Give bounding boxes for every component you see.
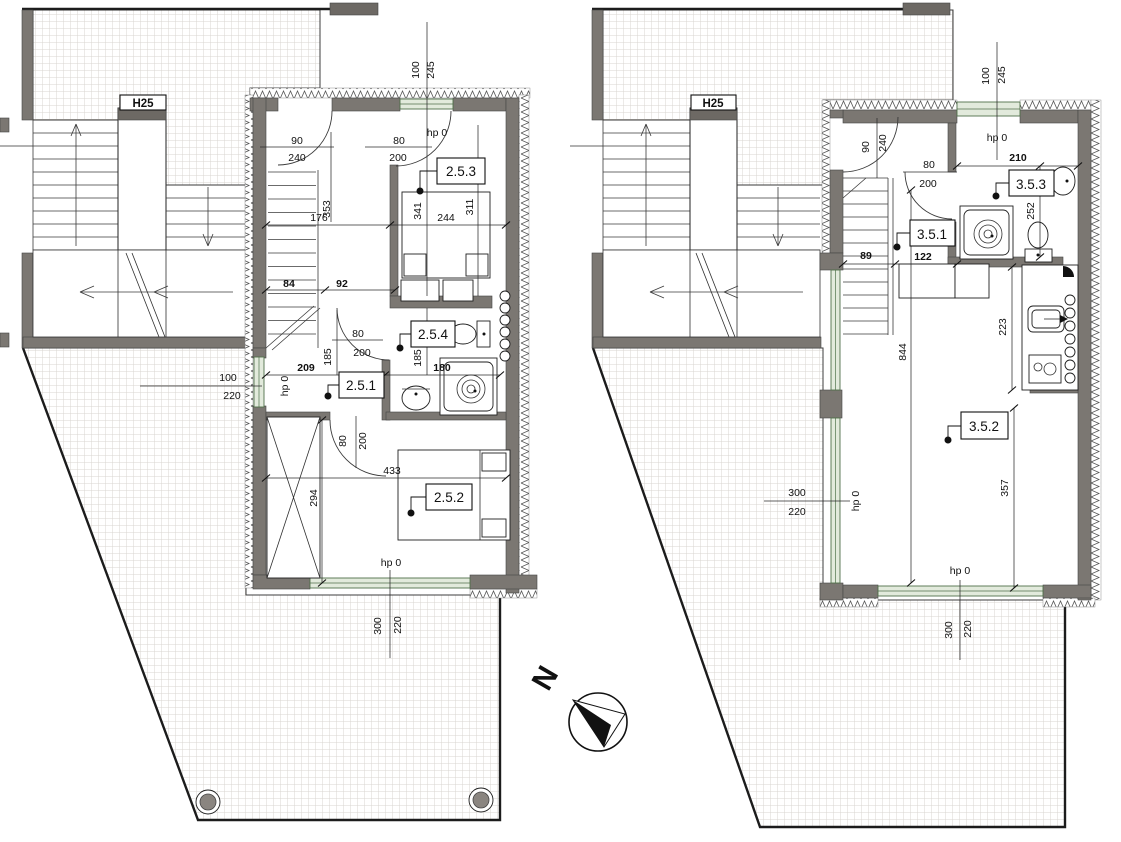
right-elevator-label: H25 <box>702 98 724 110</box>
stair-flight-up <box>603 120 690 250</box>
left-room-254-label: 2.5.4 <box>418 327 449 342</box>
stair-flight-down <box>166 185 250 250</box>
left-bottom-window-height: 220 <box>392 616 404 634</box>
stair-flight-down <box>737 185 820 250</box>
toilet-icon <box>1025 222 1052 262</box>
right-room-351-label: 3.5.1 <box>917 227 947 242</box>
right-bottom-hp: hp 0 <box>950 565 971 577</box>
floor-plan-svg: H25 <box>0 0 1121 842</box>
right-entry-door-height: 240 <box>877 134 889 152</box>
left-dim-84: 84 <box>283 278 295 290</box>
kitchen <box>1022 265 1078 390</box>
right-top-window-width: 100 <box>980 67 992 85</box>
floor-plan-sheet: H25 <box>0 0 1121 842</box>
right-top-hp: hp 0 <box>987 132 1008 144</box>
right-dim-122: 122 <box>914 251 932 263</box>
right-top-wall-cap <box>903 3 950 15</box>
left-dim-244: 244 <box>437 212 455 224</box>
left-door-253-width: 80 <box>393 135 405 147</box>
hall-cabinets <box>899 264 989 298</box>
left-dim-311: 311 <box>464 198 476 215</box>
left-top-wall-cap <box>330 3 378 15</box>
toilet-icon <box>450 321 490 347</box>
right-dim-844: 844 <box>897 343 909 361</box>
left-top-window-width: 100 <box>410 61 422 79</box>
left-dim-433: 433 <box>383 465 401 477</box>
left-plan: H25 <box>0 3 537 820</box>
left-internal-stairs <box>266 170 320 350</box>
right-dim-223: 223 <box>997 318 1009 336</box>
left-elevator-label: H25 <box>132 98 154 110</box>
left-top-hp: hp 0 <box>427 127 448 139</box>
elevator-shaft <box>690 108 737 250</box>
right-left-hp: hp 0 <box>850 491 862 512</box>
left-door-253-height: 200 <box>389 152 407 164</box>
right-left-window-height: 220 <box>788 506 806 518</box>
right-left-window-width: 300 <box>788 487 806 499</box>
right-dim-89: 89 <box>860 250 872 262</box>
left-room-251-label: 2.5.1 <box>346 378 376 393</box>
sink-icon <box>402 386 430 410</box>
left-door-254-height: 200 <box>353 347 371 359</box>
right-dim-252: 252 <box>1025 202 1037 220</box>
left-dim-180: 180 <box>433 362 451 374</box>
right-door-353-height: 200 <box>919 178 937 190</box>
left-room-253-label: 2.5.3 <box>446 164 476 179</box>
north-arrow: N <box>526 661 627 751</box>
left-entry-door-height: 240 <box>288 152 306 164</box>
right-plan: H25 <box>570 3 1101 827</box>
left-dim-294: 294 <box>308 489 320 507</box>
left-left-hp: hp 0 <box>279 376 291 397</box>
right-room-352-label: 3.5.2 <box>969 419 999 434</box>
left-dim-185-b: 185 <box>322 348 334 366</box>
left-dim-92: 92 <box>336 278 348 290</box>
right-bottom-window-height: 220 <box>962 620 974 638</box>
left-left-window-width: 100 <box>219 372 237 384</box>
left-left-window-height: 220 <box>223 390 241 402</box>
left-bottom-window-width: 300 <box>372 617 384 635</box>
left-door-254-width: 80 <box>352 328 364 340</box>
left-dim-341: 341 <box>412 202 424 220</box>
left-room-252-label: 2.5.2 <box>434 490 464 505</box>
north-letter: N <box>526 661 565 696</box>
stair-flight-up <box>33 120 118 250</box>
left-dim-185-a: 185 <box>412 349 424 367</box>
left-dim-209: 209 <box>297 362 315 374</box>
left-door-252-width: 80 <box>337 435 349 447</box>
right-door-353-width: 80 <box>923 159 935 171</box>
right-bottom-window-width: 300 <box>943 621 955 639</box>
left-door-252-height: 200 <box>357 432 369 450</box>
right-entry-door-width: 90 <box>860 141 872 153</box>
left-top-window-height: 245 <box>425 61 437 79</box>
right-dim-210: 210 <box>1009 152 1027 164</box>
right-top-window-height: 245 <box>996 66 1008 84</box>
shower-icon <box>960 206 1013 259</box>
left-dim-353: 353 <box>321 200 333 218</box>
sink-icon <box>1051 167 1075 195</box>
left-bottom-hp: hp 0 <box>381 557 402 569</box>
right-dim-357: 357 <box>999 479 1011 497</box>
left-entry-door-width: 90 <box>291 135 303 147</box>
right-room-353-label: 3.5.3 <box>1016 177 1046 192</box>
elevator-shaft <box>118 108 166 250</box>
